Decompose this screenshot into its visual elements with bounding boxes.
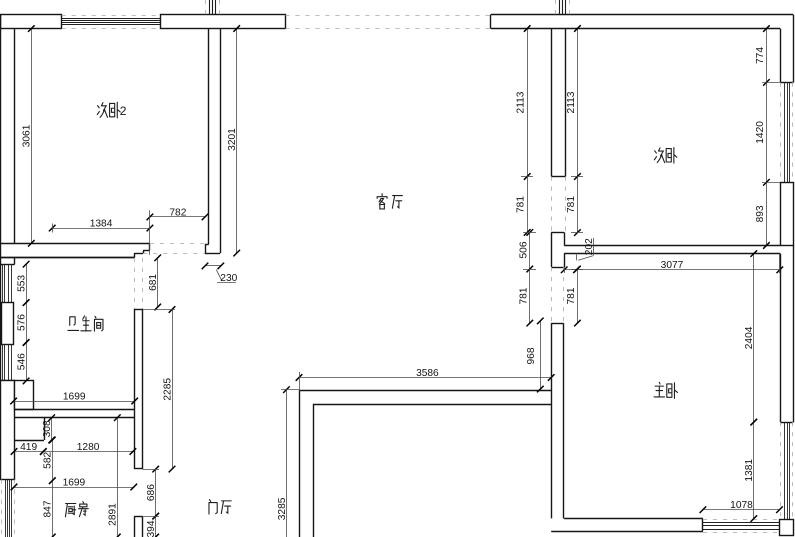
svg-text:893: 893 [755,205,766,222]
svg-text:308: 308 [42,420,53,437]
svg-text:2113: 2113 [516,91,527,113]
svg-text:3586: 3586 [416,368,439,379]
svg-text:781: 781 [566,287,577,304]
svg-text:781: 781 [566,196,577,213]
svg-text:1420: 1420 [755,121,766,144]
svg-text:394: 394 [146,520,157,537]
svg-text:781: 781 [516,196,527,213]
svg-text:774: 774 [755,47,766,64]
svg-text:3201: 3201 [227,128,238,151]
svg-text:3077: 3077 [661,260,684,271]
svg-text:1384: 1384 [90,219,113,230]
svg-text:781: 781 [518,287,529,304]
svg-text:553: 553 [16,275,27,292]
svg-text:202: 202 [584,238,595,255]
svg-text:2: 2 [120,104,127,118]
svg-text:686: 686 [146,484,157,501]
svg-text:1699: 1699 [63,477,86,488]
svg-text:2404: 2404 [744,326,755,349]
svg-text:1381: 1381 [744,459,755,482]
svg-text:968: 968 [526,347,537,364]
svg-text:3285: 3285 [277,497,288,520]
svg-text:1280: 1280 [77,442,100,453]
svg-text:2891: 2891 [108,503,119,526]
svg-text:681: 681 [148,274,159,291]
svg-text:847: 847 [43,500,54,517]
svg-text:782: 782 [169,207,186,218]
svg-text:3061: 3061 [22,124,33,147]
svg-text:2285: 2285 [162,378,173,401]
svg-text:582: 582 [43,452,54,469]
svg-text:419: 419 [20,442,37,453]
svg-text:506: 506 [518,241,529,258]
svg-text:1699: 1699 [63,391,86,402]
svg-text:1078: 1078 [730,500,753,511]
svg-text:546: 546 [16,353,27,370]
svg-text:576: 576 [16,314,27,331]
svg-text:2113: 2113 [566,91,577,113]
